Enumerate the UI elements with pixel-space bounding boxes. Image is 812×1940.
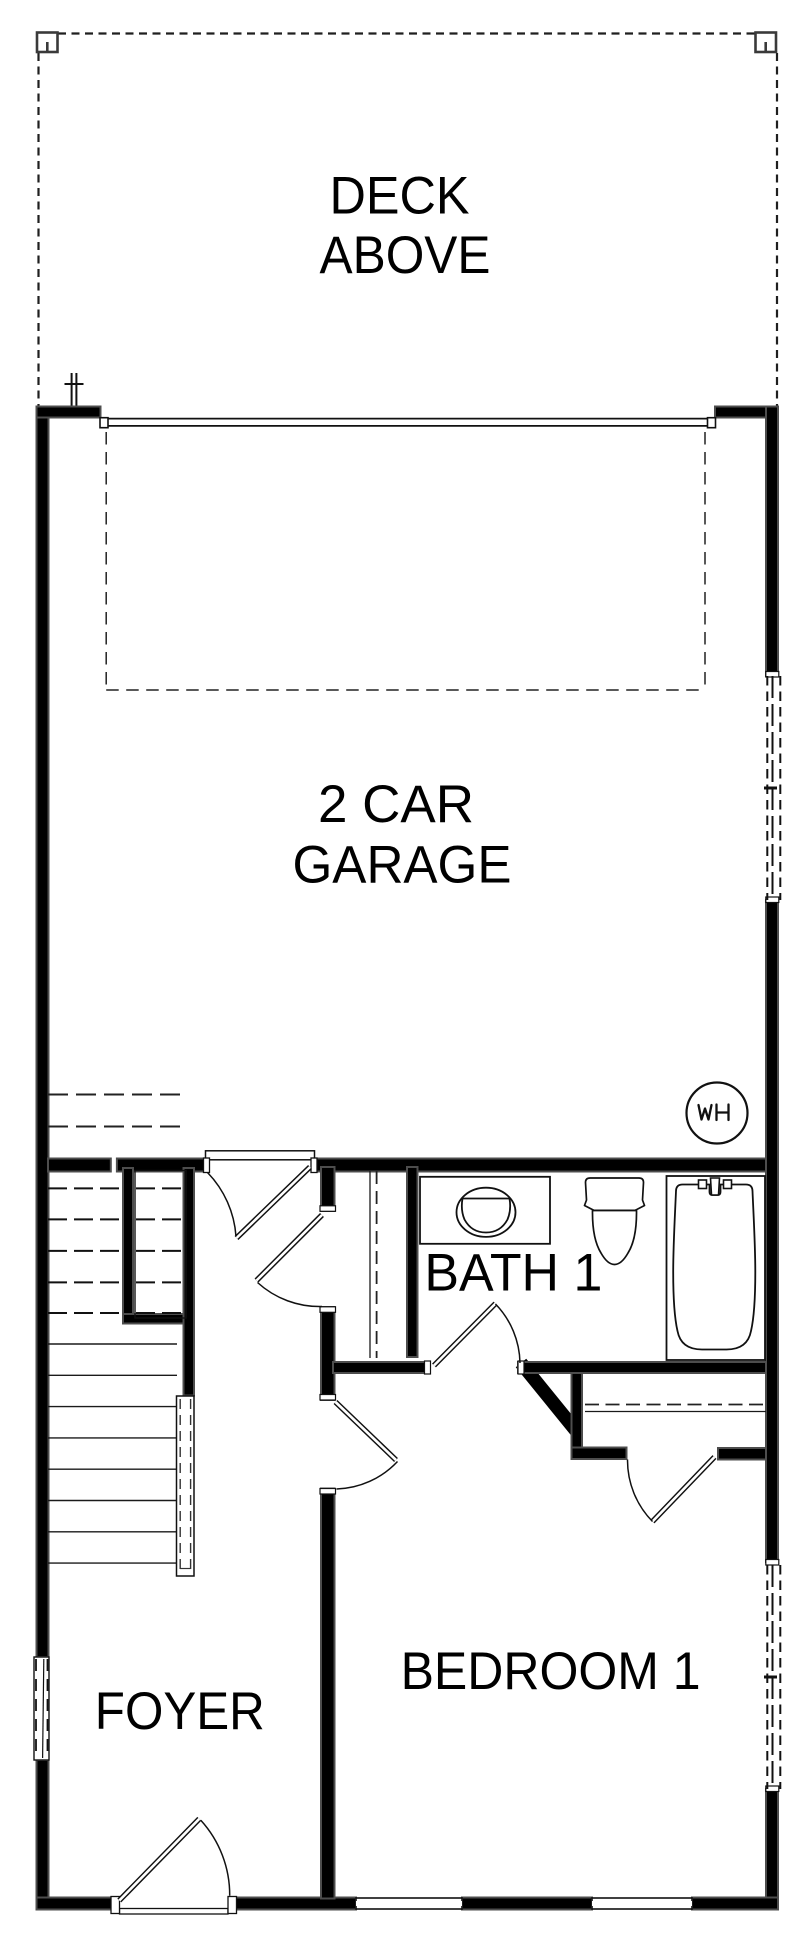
svg-text:GARAGE: GARAGE bbox=[293, 835, 512, 894]
svg-text:BEDROOM 1: BEDROOM 1 bbox=[401, 1642, 701, 1701]
svg-text:ABOVE: ABOVE bbox=[320, 226, 491, 285]
svg-text:FOYER: FOYER bbox=[95, 1682, 265, 1741]
svg-text:DECK: DECK bbox=[330, 167, 470, 226]
svg-text:2 CAR: 2 CAR bbox=[318, 775, 474, 834]
svg-text:BATH 1: BATH 1 bbox=[424, 1243, 602, 1302]
